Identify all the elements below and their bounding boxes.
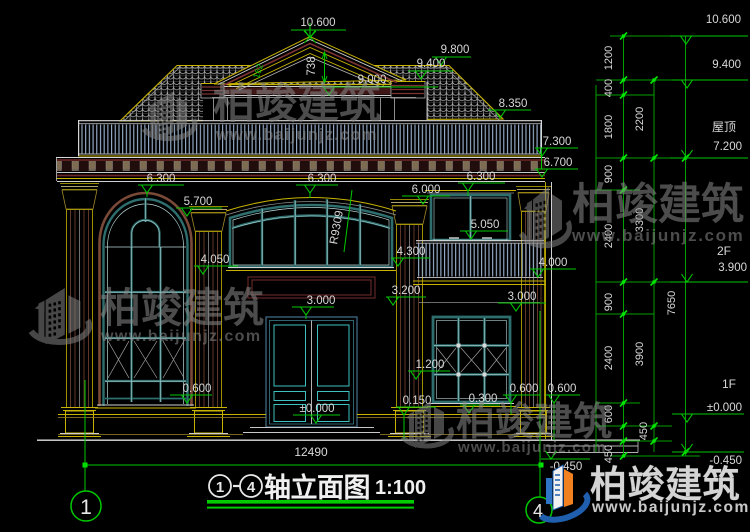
- svg-text:1:100: 1:100: [375, 477, 426, 499]
- svg-text:柏竣建筑: 柏竣建筑: [572, 181, 744, 229]
- svg-text:6.300: 6.300: [467, 171, 496, 183]
- svg-text:1800: 1800: [603, 115, 615, 139]
- svg-text:738: 738: [306, 56, 318, 75]
- svg-text:0.600: 0.600: [548, 383, 577, 395]
- svg-text:10.600: 10.600: [706, 14, 741, 26]
- svg-text:屋顶: 屋顶: [712, 120, 736, 134]
- svg-text:3.000: 3.000: [307, 295, 336, 307]
- svg-text:1: 1: [216, 479, 224, 496]
- svg-text:柏竣建筑: 柏竣建筑: [456, 401, 612, 444]
- svg-text:5.700: 5.700: [184, 196, 213, 208]
- svg-text:3900: 3900: [634, 342, 646, 366]
- svg-text:±0.000: ±0.000: [707, 402, 742, 414]
- svg-text:12490: 12490: [294, 445, 328, 459]
- svg-text:450: 450: [638, 422, 650, 440]
- svg-text:6.300: 6.300: [147, 173, 176, 185]
- svg-text:www.baijunjz.com: www.baijunjz.com: [100, 328, 262, 345]
- svg-text:6.700: 6.700: [544, 157, 573, 169]
- svg-text:www.baijunjz.com: www.baijunjz.com: [215, 126, 378, 144]
- svg-text:2200: 2200: [634, 107, 646, 131]
- svg-text:10.600: 10.600: [300, 17, 335, 29]
- svg-text:6.000: 6.000: [412, 184, 441, 196]
- svg-text:9.800: 9.800: [441, 44, 470, 56]
- svg-text:1200: 1200: [603, 46, 615, 70]
- svg-text:±0.000: ±0.000: [299, 403, 334, 415]
- svg-text:2F: 2F: [717, 244, 731, 258]
- svg-text:4.050: 4.050: [201, 254, 230, 266]
- svg-text:1.200: 1.200: [416, 359, 445, 371]
- svg-text:5.050: 5.050: [471, 219, 500, 231]
- svg-text:400: 400: [603, 79, 615, 97]
- svg-text:9.400: 9.400: [712, 59, 741, 71]
- svg-text:0.600: 0.600: [183, 383, 212, 395]
- svg-text:www.baijunjz.com: www.baijunjz.com: [571, 226, 744, 245]
- svg-text:0.600: 0.600: [510, 383, 539, 395]
- svg-text:4.000: 4.000: [539, 257, 568, 269]
- svg-text:3.200: 3.200: [392, 285, 421, 297]
- svg-text:8.350: 8.350: [499, 98, 528, 110]
- svg-text:轴立面图: 轴立面图: [264, 472, 370, 503]
- svg-text:3.900: 3.900: [718, 262, 747, 274]
- svg-text:2400: 2400: [603, 346, 615, 370]
- svg-text:www.baijunjz.com: www.baijunjz.com: [591, 499, 750, 516]
- svg-text:900: 900: [603, 293, 615, 311]
- svg-text:7.300: 7.300: [543, 136, 572, 148]
- svg-text:7.200: 7.200: [713, 141, 742, 153]
- svg-text:柏竣建筑: 柏竣建筑: [213, 80, 381, 127]
- svg-text:4.300: 4.300: [397, 246, 426, 258]
- svg-text:1: 1: [80, 496, 92, 519]
- svg-text:9.400: 9.400: [417, 58, 446, 70]
- svg-text:7650: 7650: [666, 291, 678, 315]
- svg-text:3.000: 3.000: [508, 291, 537, 303]
- svg-text:www.baijunjz.com: www.baijunjz.com: [457, 439, 607, 456]
- svg-text:6.300: 6.300: [308, 173, 337, 185]
- svg-text:柏竣建筑: 柏竣建筑: [100, 285, 264, 331]
- svg-text:1F: 1F: [722, 377, 736, 391]
- svg-text:4: 4: [247, 479, 256, 496]
